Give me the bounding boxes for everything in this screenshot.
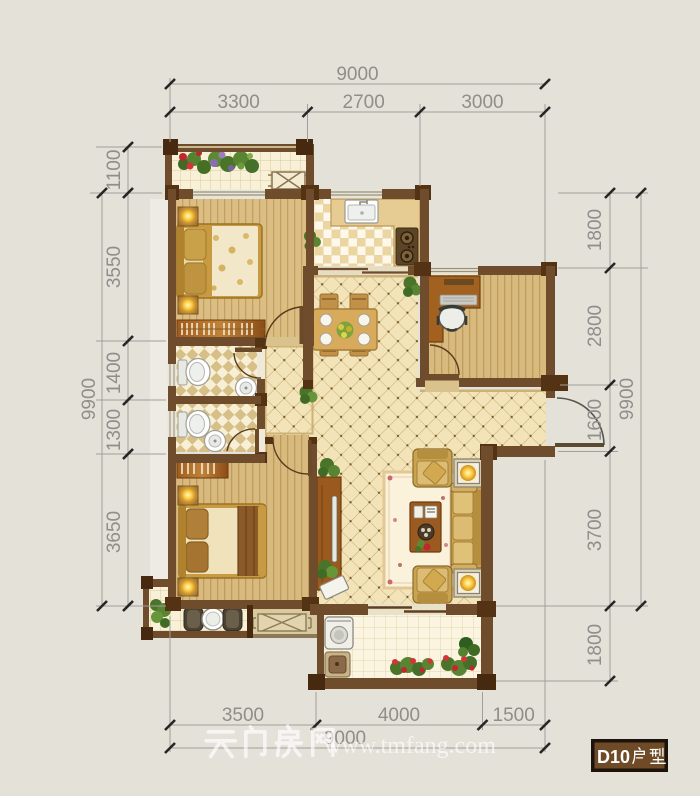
svg-text:1600: 1600 <box>585 399 606 441</box>
svg-text:3300: 3300 <box>218 92 260 113</box>
svg-text:www.tmfang.com: www.tmfang.com <box>324 733 496 759</box>
svg-text:9900: 9900 <box>617 378 638 420</box>
svg-text:1800: 1800 <box>585 209 606 251</box>
svg-text:9000: 9000 <box>336 64 378 85</box>
svg-text:3700: 3700 <box>585 509 606 551</box>
svg-text:3550: 3550 <box>104 246 125 288</box>
svg-text:1300: 1300 <box>104 409 125 451</box>
svg-text:3500: 3500 <box>222 705 264 726</box>
svg-text:3650: 3650 <box>104 511 125 553</box>
svg-text:3000: 3000 <box>461 92 503 113</box>
svg-text:4000: 4000 <box>378 705 420 726</box>
svg-text:1400: 1400 <box>104 352 125 394</box>
svg-text:9900: 9900 <box>79 378 100 420</box>
svg-text:D10: D10 <box>597 747 630 767</box>
svg-text:2800: 2800 <box>585 305 606 347</box>
svg-text:1500: 1500 <box>493 705 535 726</box>
svg-text:2700: 2700 <box>343 92 385 113</box>
svg-text:1800: 1800 <box>585 624 606 666</box>
svg-text:1100: 1100 <box>104 150 125 191</box>
